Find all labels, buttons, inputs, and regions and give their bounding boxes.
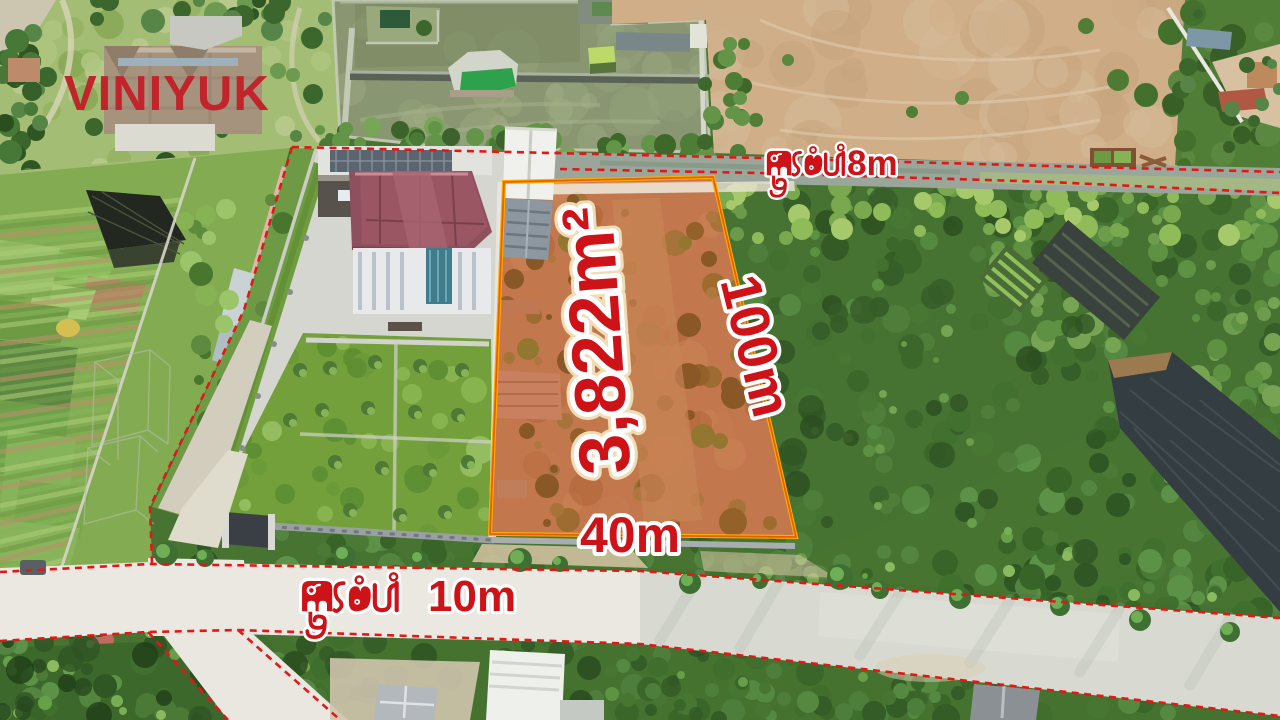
svg-text:VINIYUK: VINIYUK [64,67,270,121]
svg-text:8m: 8m [847,144,898,183]
svg-text:40m: 40m [580,507,680,563]
svg-text:10m: 10m [428,572,516,621]
